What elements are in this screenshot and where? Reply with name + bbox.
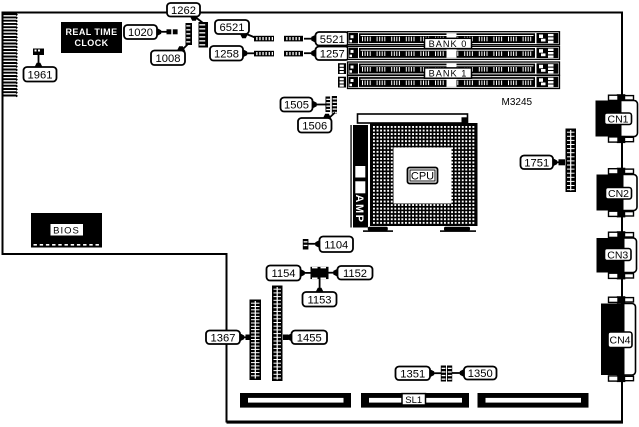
svg-text:CLOCK: CLOCK	[75, 38, 109, 48]
svg-text:CN4: CN4	[609, 335, 630, 347]
svg-text:1152: 1152	[343, 268, 367, 280]
svg-text:CN1: CN1	[607, 114, 628, 126]
svg-text:1350: 1350	[468, 368, 493, 380]
svg-text:1262: 1262	[171, 5, 196, 17]
svg-text:1104: 1104	[324, 239, 348, 251]
svg-text:5521: 5521	[320, 34, 345, 46]
svg-text:SL1: SL1	[405, 395, 422, 406]
svg-text:AMP: AMP	[353, 195, 365, 224]
svg-text:1961: 1961	[28, 69, 53, 81]
svg-text:1154: 1154	[271, 268, 295, 280]
svg-text:BANK 0: BANK 0	[429, 39, 468, 49]
svg-text:1020: 1020	[128, 27, 153, 39]
svg-text:1506: 1506	[302, 120, 327, 132]
svg-text:CN3: CN3	[607, 249, 628, 261]
svg-text:CN2: CN2	[608, 188, 629, 200]
svg-text:BANK 1: BANK 1	[429, 68, 468, 78]
svg-text:6521: 6521	[220, 22, 245, 34]
svg-text:1505: 1505	[284, 100, 309, 112]
svg-text:1257: 1257	[320, 48, 345, 60]
svg-text:1258: 1258	[214, 48, 239, 60]
svg-text:1153: 1153	[307, 294, 331, 306]
svg-text:1751: 1751	[524, 157, 549, 169]
svg-text:M3245: M3245	[502, 97, 533, 108]
svg-text:1351: 1351	[400, 368, 425, 380]
svg-text:REAL TIME: REAL TIME	[66, 27, 118, 37]
svg-text:1455: 1455	[297, 332, 322, 344]
svg-text:BIOS: BIOS	[53, 226, 80, 237]
svg-text:1008: 1008	[156, 53, 181, 65]
svg-text:1367: 1367	[211, 332, 236, 344]
svg-text:CPU: CPU	[411, 171, 434, 183]
